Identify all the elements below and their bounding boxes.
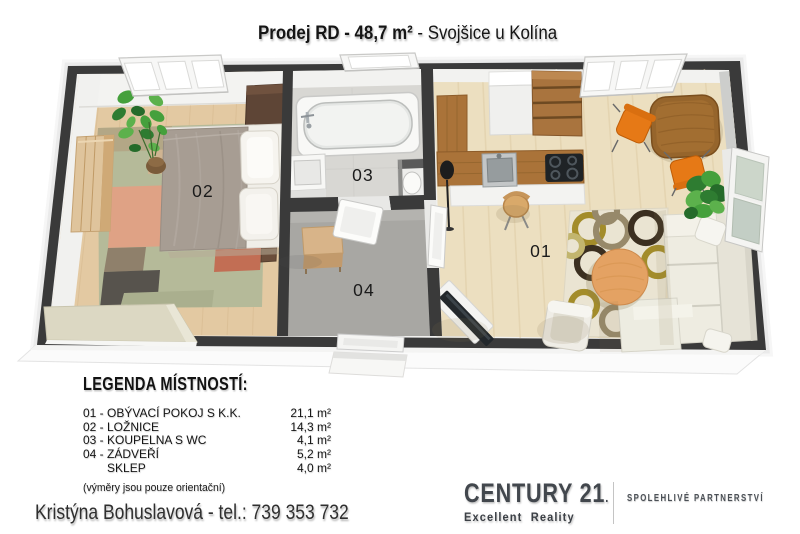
svg-text:03: 03 bbox=[352, 165, 374, 185]
svg-text:01: 01 bbox=[530, 241, 552, 261]
svg-text:02: 02 bbox=[192, 181, 214, 201]
svg-text:04: 04 bbox=[353, 280, 375, 300]
